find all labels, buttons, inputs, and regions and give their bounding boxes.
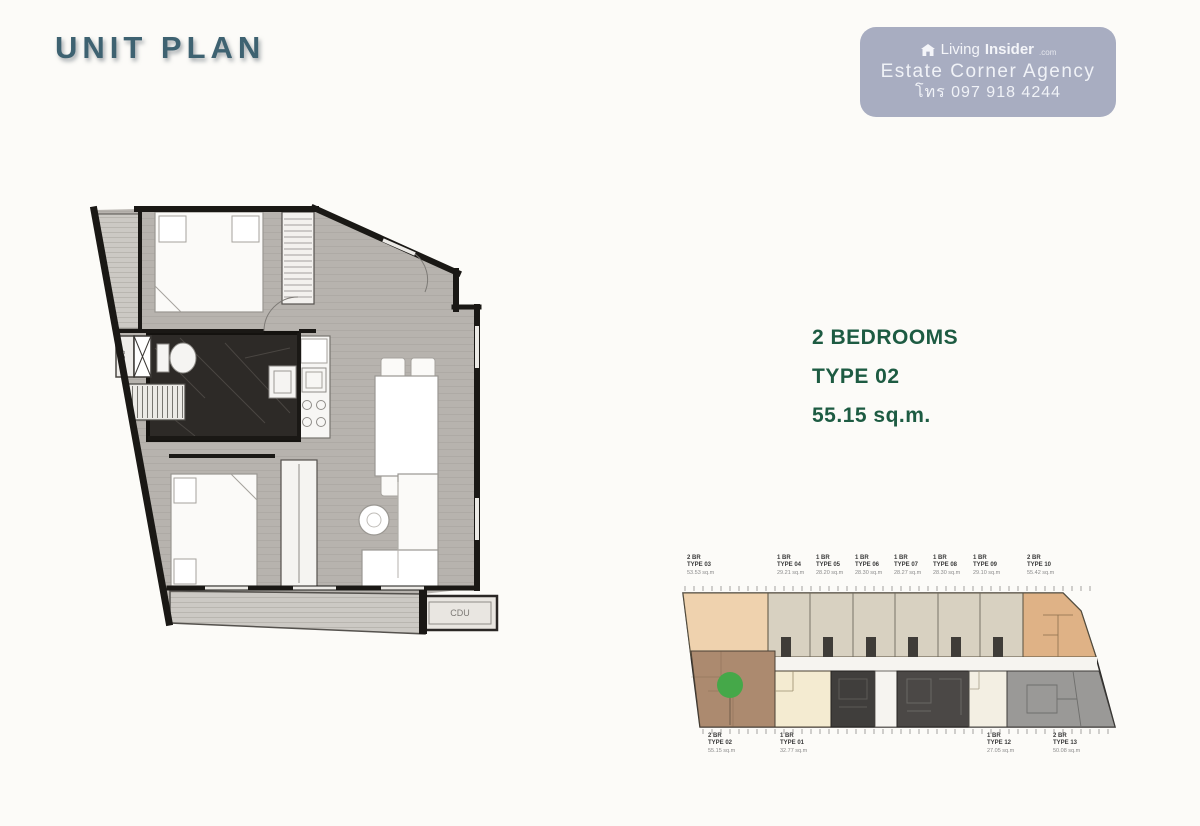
unit-label-type02: 2 BRTYPE 0255.15 sq.m	[708, 733, 768, 755]
cdu-ledge: CDU	[419, 590, 497, 634]
unit-plan-page: { "page": { "title": "UNIT PLAN" }, "wat…	[0, 0, 1200, 826]
unit-label-type01: 1 BRTYPE 0132.77 sq.m	[780, 733, 840, 755]
unit-floor-plan: CDU FCU	[85, 198, 515, 653]
plate-units-1br-strip	[768, 593, 1023, 657]
brand-light: Living	[941, 41, 980, 60]
unit-label-type03: 2 BRTYPE 0353.53 sq.m	[687, 555, 747, 577]
plate-unit-type12	[969, 671, 1007, 727]
page-title: UNIT PLAN	[55, 30, 265, 66]
plate-corridor	[775, 657, 1097, 671]
plate-unit-type01	[775, 671, 831, 727]
unit-label-type12: 1 BRTYPE 1227.05 sq.m	[987, 733, 1047, 755]
watermark-phone: โทร 097 918 4244	[915, 83, 1061, 103]
unit-area: 55.15 sq.m.	[812, 404, 958, 428]
unit-label-type09: 1 BRTYPE 0929.10 sq.m	[973, 555, 1033, 577]
plate-unit-type10	[1023, 593, 1096, 657]
dimension-ticks-top	[683, 586, 1098, 591]
side-table	[359, 505, 389, 535]
sofa-seat	[362, 550, 438, 588]
bedroom2	[155, 212, 314, 312]
unit-info: 2 BEDROOMS TYPE 02 55.15 sq.m.	[812, 326, 958, 443]
dining-table	[375, 376, 438, 476]
entry-wardrobe	[127, 384, 185, 420]
master-bedroom	[171, 460, 317, 587]
highlighted-unit-marker	[717, 672, 743, 698]
watermark-badge: LivingInsider.com Estate Corner Agency โ…	[860, 27, 1116, 117]
unit-type: TYPE 02	[812, 365, 958, 389]
floor-plate: 2 BRTYPE 0353.53 sq.m 1 BRTYPE 0429.21 s…	[663, 553, 1133, 778]
plate-lobby	[875, 671, 897, 727]
unit-bedrooms: 2 BEDROOMS	[812, 326, 958, 350]
unit-label-type13: 2 BRTYPE 1350.08 sq.m	[1053, 733, 1113, 755]
watermark-agency: Estate Corner Agency	[881, 60, 1096, 84]
watermark-brand: LivingInsider.com	[920, 41, 1057, 60]
floor-plate-drawing	[663, 585, 1128, 737]
kitchen	[298, 336, 330, 438]
unit-label-type10: 2 BRTYPE 1055.42 sq.m	[1027, 555, 1087, 577]
brand-bold: Insider	[985, 41, 1034, 60]
cdu-label: CDU	[450, 608, 470, 618]
brand-suffix: .com	[1039, 48, 1056, 58]
plate-unit-type03	[683, 593, 768, 657]
house-icon	[920, 43, 936, 58]
